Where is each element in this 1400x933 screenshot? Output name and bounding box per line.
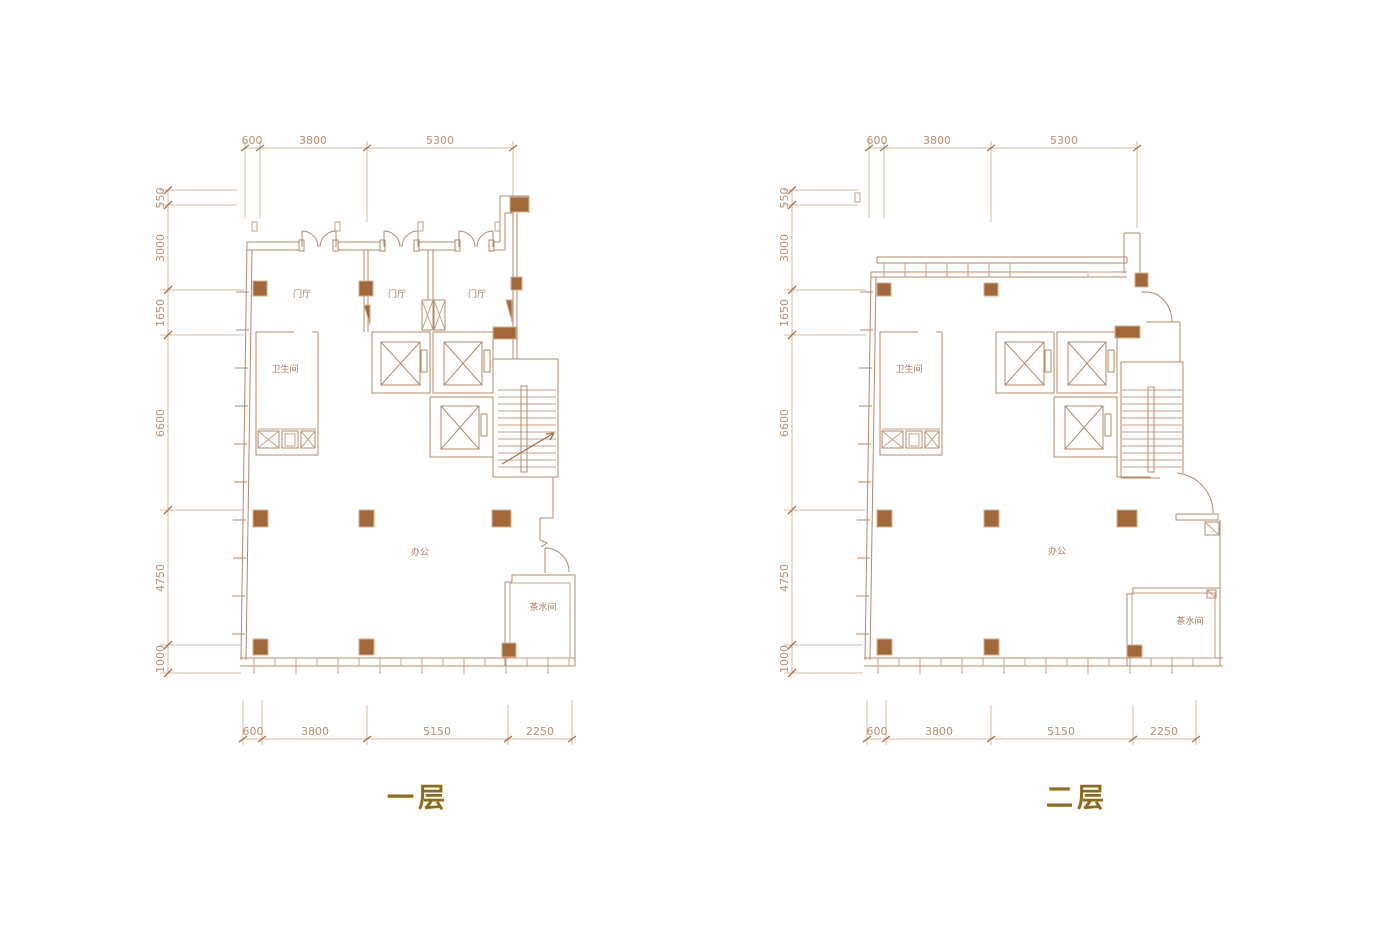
dim-label: 600 <box>242 134 263 147</box>
floor1-columns <box>253 197 529 657</box>
column <box>511 277 522 290</box>
column <box>877 283 891 296</box>
bottom-wall <box>240 658 575 666</box>
dim-label: 2250 <box>526 725 554 738</box>
dim-label: 5300 <box>1050 134 1078 147</box>
floor1-shafts <box>422 300 445 330</box>
dim-label: 4750 <box>778 564 791 592</box>
elevator-icon <box>996 332 1054 393</box>
floor2-plan: 600 3800 5300 550 3000 1650 6600 4750 10… <box>778 134 1223 814</box>
stair-break-line <box>502 433 554 464</box>
top-band-mullions <box>884 263 1118 277</box>
floor1-plan: 600 3800 5300 550 3000 1650 6600 4750 10… <box>154 134 576 814</box>
floor1-stairs <box>493 359 558 477</box>
room-label-office: 办公 <box>411 546 429 558</box>
dim-label: 4750 <box>154 564 167 592</box>
column <box>359 510 374 527</box>
dim-label: 3000 <box>154 234 167 262</box>
column <box>253 281 267 296</box>
room-label-foyer: 门厅 <box>293 288 311 300</box>
dim-label: 600 <box>867 134 888 147</box>
dim-label: 3800 <box>923 134 951 147</box>
dim-label: 3000 <box>778 234 791 262</box>
floor2-stair-door <box>1176 473 1219 535</box>
room-label-bathroom: 卫生间 <box>271 363 298 375</box>
room-label-bathroom: 卫生间 <box>895 363 922 375</box>
dim-label: 5300 <box>426 134 454 147</box>
column <box>877 639 892 655</box>
left-wall <box>241 242 252 660</box>
floorplan-image: 600 3800 5300 550 3000 1650 6600 4750 10… <box>0 0 1400 933</box>
column <box>253 639 268 655</box>
floor2-elevators <box>996 332 1117 457</box>
floor2-entry-door <box>1141 292 1172 322</box>
bathroom-fixtures <box>882 431 939 448</box>
floor1-walls <box>232 196 575 674</box>
room-label-pantry: 茶水间 <box>529 601 556 613</box>
dim-label: 1650 <box>154 299 167 327</box>
column <box>984 283 998 296</box>
dim-label: 2250 <box>1150 725 1178 738</box>
floor1-canopy-posts <box>252 222 500 231</box>
top-wall <box>247 242 505 250</box>
right-lower-wall <box>540 477 553 547</box>
floor2-columns <box>877 273 1148 657</box>
column <box>877 510 892 527</box>
elevator-icon <box>433 332 493 393</box>
dim-label: 3800 <box>301 725 329 738</box>
elevator-icon <box>372 332 430 393</box>
top-right-wall <box>1124 233 1180 362</box>
column <box>510 197 529 212</box>
column <box>493 327 516 339</box>
dim-label: 3800 <box>925 725 953 738</box>
column <box>1135 273 1148 287</box>
floor1-elevators <box>372 332 493 457</box>
column <box>984 510 999 527</box>
floor2-canopy-posts <box>855 193 860 202</box>
column <box>1127 645 1142 657</box>
floor2-bathroom <box>880 332 942 455</box>
dim-label: 1000 <box>154 645 167 673</box>
bottom-wall <box>864 658 1223 666</box>
column <box>359 639 374 655</box>
dim-label: 6600 <box>154 409 167 437</box>
dim-label: 5150 <box>1047 725 1075 738</box>
room-label-office: 办公 <box>1048 545 1066 557</box>
room-label-foyer: 门厅 <box>388 288 406 300</box>
room-label-foyer: 门厅 <box>468 288 486 300</box>
bathroom-fixtures <box>258 431 315 448</box>
floor1-bathroom <box>256 332 318 455</box>
column <box>984 639 999 655</box>
top-window-band <box>871 257 1127 277</box>
room-label-pantry: 茶水间 <box>1176 615 1203 627</box>
column <box>1115 326 1140 338</box>
floor2-title: 二层 <box>1046 783 1108 814</box>
dim-label: 6600 <box>778 409 791 437</box>
floor2-stairs <box>1121 362 1183 478</box>
dim-label: 1000 <box>778 645 791 673</box>
column <box>502 643 516 657</box>
floor1-title: 一层 <box>387 783 449 814</box>
column <box>253 510 268 527</box>
dim-label: 550 <box>154 188 167 209</box>
dim-label: 600 <box>243 725 264 738</box>
dim-label: 550 <box>778 188 791 209</box>
dim-label: 3800 <box>299 134 327 147</box>
floor1-entrance-doors <box>302 231 493 247</box>
elevator-icon <box>1057 332 1117 393</box>
left-wall-mullions <box>856 292 873 634</box>
door-leaf <box>364 305 370 325</box>
elevator-icon <box>430 397 493 457</box>
floor1-office-door <box>545 548 569 573</box>
elevator-icon <box>1054 397 1117 457</box>
dim-label: 5150 <box>423 725 451 738</box>
dim-label: 1650 <box>778 299 791 327</box>
left-wall-mullions <box>232 292 249 634</box>
floorplan-svg: 600 3800 5300 550 3000 1650 6600 4750 10… <box>0 0 1400 933</box>
dim-label: 600 <box>867 725 888 738</box>
column <box>492 510 511 527</box>
column <box>359 281 373 296</box>
door-leaf <box>506 300 512 322</box>
column <box>1117 510 1137 527</box>
